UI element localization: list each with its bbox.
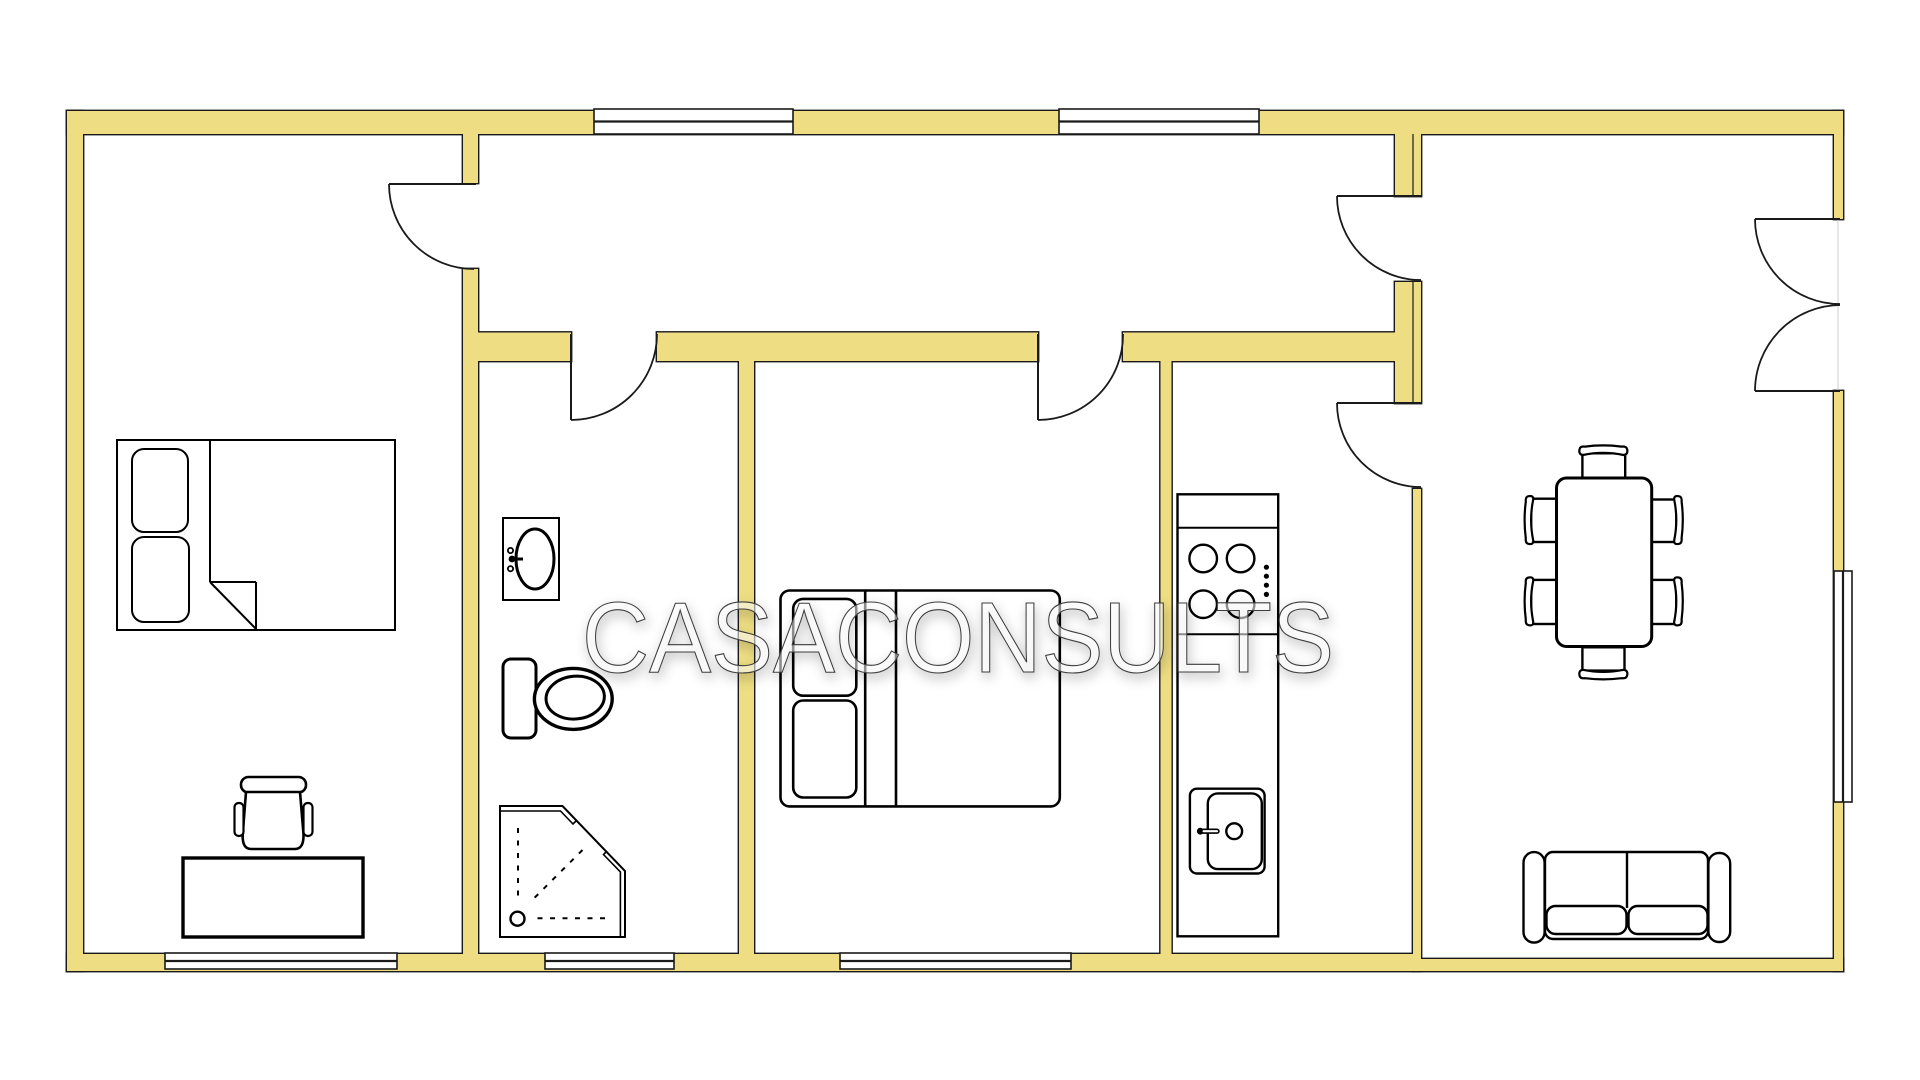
svg-text:CASACONSULTS: CASACONSULTS bbox=[582, 582, 1334, 694]
